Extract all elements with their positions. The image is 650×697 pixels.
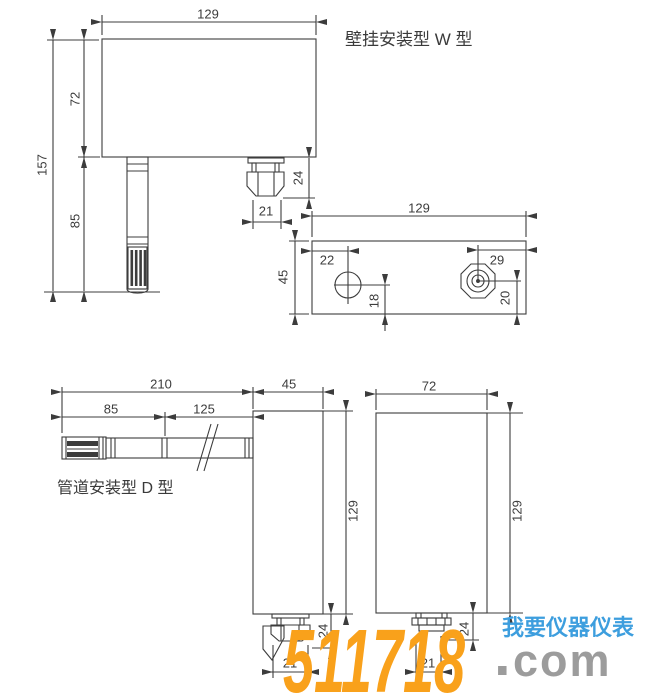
wall-front-view (44, 15, 316, 293)
watermark-number: 511718 (283, 617, 465, 697)
cable-gland-side (247, 158, 284, 196)
dim-bottom-width: 129 (408, 202, 430, 215)
watermark-tld: com (513, 638, 612, 683)
dim-bottom-depth: 45 (277, 270, 290, 284)
wall-bottom-view (289, 211, 526, 331)
dim-wall-gland-height: 24 (292, 171, 305, 185)
dim-duct-probe-shaft: 125 (193, 403, 215, 416)
drawing-linework (0, 0, 650, 697)
dim-gland-from-right: 29 (490, 254, 504, 267)
dim-duct-probe-total: 210 (150, 378, 172, 391)
wall-mount-title: 壁挂安装型 W 型 (345, 30, 473, 50)
duct-mount-title: 管道安装型 D 型 (57, 479, 173, 498)
dim-duct-body-depth: 45 (282, 378, 296, 391)
break-symbol (197, 424, 218, 471)
dim-gland-from-bottom: 20 (499, 291, 512, 305)
technical-drawing-page: 壁挂安装型 W 型 管道安装型 D 型 129 157 72 85 24 21 … (0, 0, 650, 697)
dim-wall-body-height: 72 (69, 92, 82, 106)
dim-duct-front-width: 72 (422, 380, 436, 393)
dim-hole-from-bottom: 18 (368, 294, 381, 308)
watermark-slogan: 我要仪器仪表 (502, 617, 634, 639)
dim-wall-width: 129 (197, 8, 219, 21)
dim-duct-body-height: 129 (347, 500, 360, 522)
dim-duct-front-height: 129 (511, 500, 524, 522)
dim-wall-probe-length: 85 (69, 214, 82, 228)
dim-wall-total-height: 157 (36, 154, 49, 176)
dim-hole-from-left: 22 (320, 254, 334, 267)
dim-wall-gland-width: 21 (259, 205, 273, 218)
dim-duct-probe-head: 85 (104, 403, 118, 416)
probe-filter-slots (131, 250, 147, 286)
